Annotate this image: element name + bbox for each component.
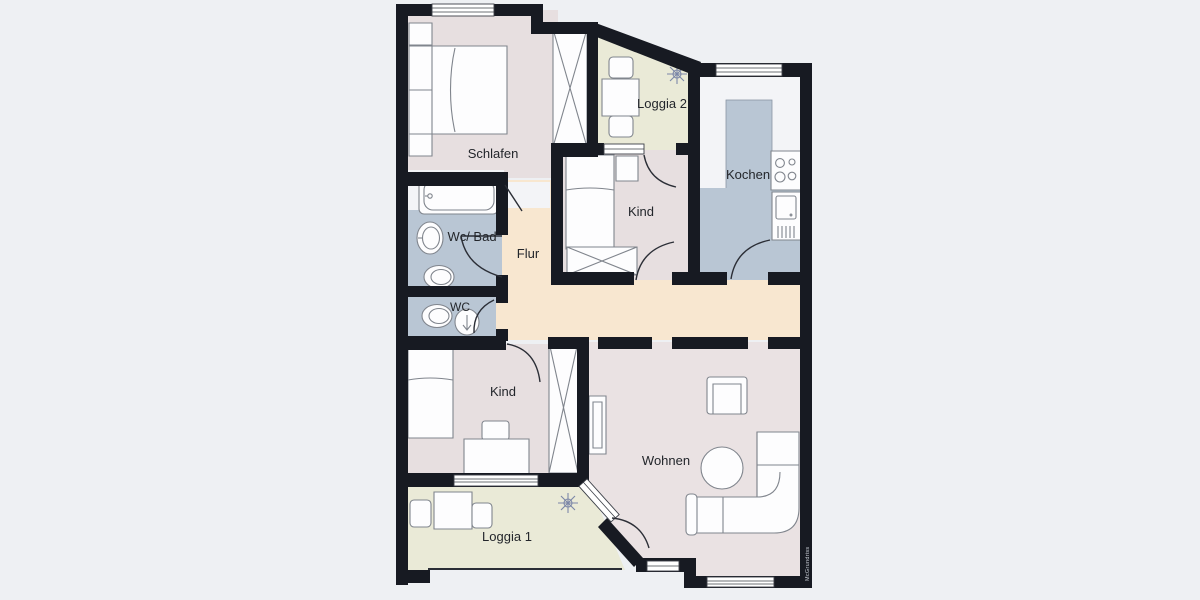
kind-bottom-wardrobe-icon	[549, 342, 578, 473]
wardrobe-icon	[553, 29, 587, 147]
round-table-icon	[701, 447, 743, 489]
watermark-text: McGrundriss	[805, 547, 811, 581]
label-wcbad: Wc/ Bad	[447, 229, 496, 244]
washbasin-icon	[417, 222, 443, 254]
window-kind-top	[604, 144, 644, 154]
kind-bottom-bed-icon	[408, 345, 453, 438]
label-wohnen: Wohnen	[642, 453, 690, 468]
wall-wc-right-upper	[496, 293, 508, 303]
corridor-floor	[496, 280, 806, 340]
sideboard-icon	[589, 396, 606, 454]
wall-kind-top-2	[676, 143, 700, 155]
label-kind-bottom: Kind	[490, 384, 516, 399]
wall-dashed-4	[768, 337, 803, 349]
wall-wcbad-wc-divider	[396, 286, 498, 297]
wall-wc-bottom	[396, 336, 506, 350]
wall-loggia1-stub	[408, 570, 430, 583]
window-schlafen	[432, 4, 494, 16]
label-flur: Flur	[517, 246, 540, 261]
wall-wcbad-right-upper	[496, 172, 508, 235]
label-kochen: Kochen	[726, 167, 770, 182]
window-wohnen-right	[707, 577, 774, 587]
window-kochen	[716, 64, 782, 76]
toilet-icon	[424, 266, 454, 289]
wall-corridor-top-3	[768, 272, 812, 285]
wall-dashed-2	[598, 337, 652, 349]
armchair-icon	[707, 377, 747, 414]
room-wcbad-floor	[408, 210, 504, 294]
wall-closet-right	[587, 22, 598, 157]
wall-right	[800, 63, 812, 588]
label-schlafen: Schlafen	[468, 146, 519, 161]
wall-dashed-3	[672, 337, 748, 349]
floorplan-svg: Schlafen Loggia 2 Kochen Kind Wc/ Bad Fl…	[0, 0, 1200, 600]
label-loggia1: Loggia 1	[482, 529, 532, 544]
wall-corridor-top-1	[551, 272, 634, 285]
wc-toilet-icon	[422, 305, 452, 328]
window-kind-bottom	[454, 475, 538, 486]
label-wc: WC	[450, 300, 470, 314]
wall-kind-left	[551, 143, 563, 272]
floorplan-page: Schlafen Loggia 2 Kochen Kind Wc/ Bad Fl…	[0, 0, 1200, 600]
plant-icon	[558, 493, 578, 513]
wall-schlafen-bottom	[396, 172, 506, 186]
wall-corridor-top-2	[672, 272, 727, 285]
wall-dashed-1	[548, 337, 589, 349]
label-loggia2: Loggia 2	[637, 96, 687, 111]
label-kind-top: Kind	[628, 204, 654, 219]
cooktop-icon	[771, 151, 801, 190]
kind-top-wardrobe-icon	[567, 247, 637, 275]
wall-kind-bottom-right	[577, 348, 589, 482]
kitchen-sink-icon	[772, 192, 801, 240]
wall-kochen-left	[688, 63, 700, 285]
window-wohnen-left	[647, 561, 679, 571]
